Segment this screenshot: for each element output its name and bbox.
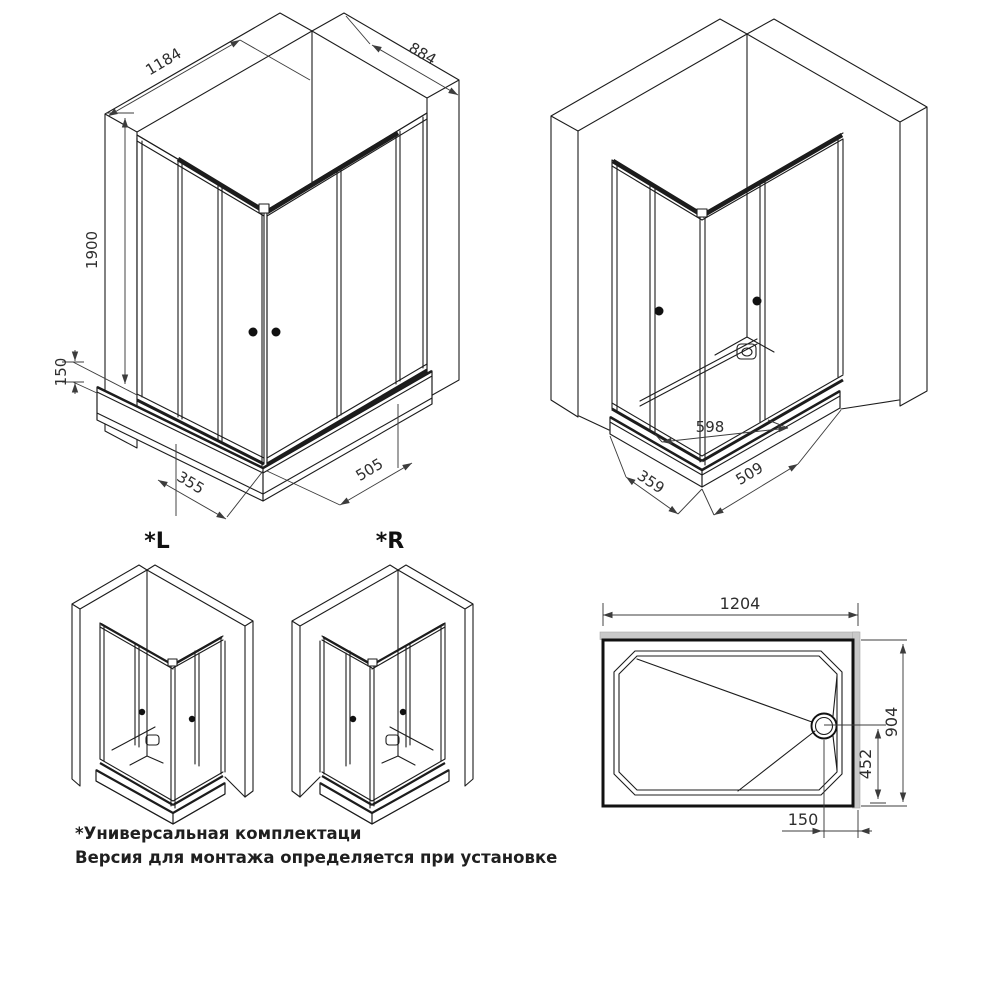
door-handle-right (189, 716, 195, 722)
corner-post (171, 664, 175, 808)
right-wall-panel (147, 565, 253, 797)
dim-505: 505 (353, 455, 387, 485)
tray-rim-inner (619, 656, 837, 790)
corner-post-cap (697, 209, 707, 217)
tray-top-view: 1204 904 452 150 (600, 594, 907, 838)
corner-post-cap (259, 204, 269, 213)
dim-150-tray: 150 (52, 358, 70, 387)
tray-interior (112, 727, 163, 765)
dimensions-tray: 1204 904 452 150 (603, 594, 907, 838)
footnote-line2: Версия для монтажа определяется при уста… (75, 848, 557, 867)
door-handle-right (753, 297, 762, 306)
drain-inner (816, 718, 833, 735)
drain-cover (146, 735, 159, 745)
left-wall-panel (72, 565, 147, 786)
label-variant-right: *R (376, 529, 405, 554)
tray-rim-outer (614, 651, 842, 795)
footnote-line1: *Универсальная комплектаци (75, 824, 361, 843)
corner-post-cap (168, 659, 177, 666)
dimension-tray-width: 1204 (603, 594, 858, 626)
variant-right-view (292, 565, 473, 824)
wall-band-top (600, 632, 859, 640)
dim-359: 359 (634, 466, 668, 497)
dim-1900: 1900 (83, 231, 101, 269)
back-isometric-view: 598 359 509 (551, 19, 927, 515)
right-wall-panel (747, 19, 927, 406)
slope-lines (637, 659, 837, 791)
label-variant-left: *L (144, 529, 170, 554)
variant-labels: *L *R (144, 529, 404, 554)
dim-452: 452 (856, 749, 875, 780)
door-handle-left (139, 709, 145, 715)
door-handle-left (249, 328, 258, 337)
dimension-tray-depth: 904 (861, 640, 907, 806)
top-rails (613, 135, 842, 216)
shower-enclosure-drawing: 1184 884 1900 150 355 (0, 0, 1000, 1000)
tray-interior (640, 337, 774, 406)
door-handle-right (272, 328, 281, 337)
dim-355: 355 (174, 468, 208, 498)
front-isometric-view: 1184 884 1900 150 355 (52, 13, 459, 519)
dim-150-drain: 150 (788, 810, 819, 829)
door-handle-left (655, 307, 664, 316)
room-walls-back (551, 19, 927, 430)
dim-1204: 1204 (720, 594, 761, 613)
shower-tray-back (610, 337, 840, 487)
top-rails (101, 624, 222, 665)
footnote: *Универсальная комплектаци Версия для мо… (75, 824, 557, 867)
dim-598: 598 (696, 418, 725, 436)
technical-drawing-page: 1184 884 1900 150 355 (0, 0, 1000, 1000)
variant-left-view (72, 565, 253, 824)
dim-904: 904 (882, 707, 901, 738)
left-wall-panel (551, 19, 747, 417)
